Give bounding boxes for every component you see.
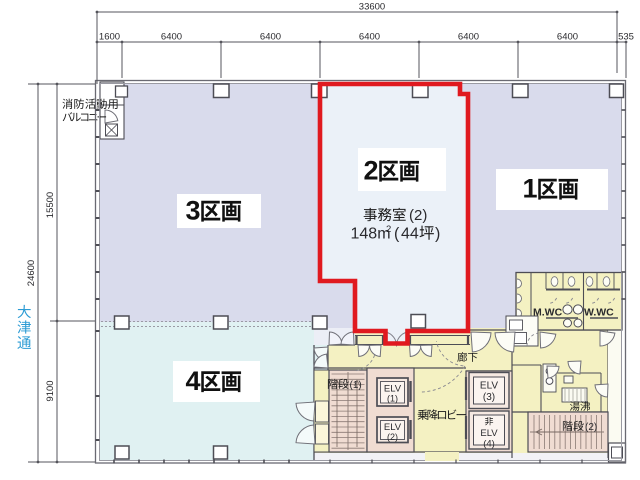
svg-text:(3): (3): [483, 392, 495, 403]
svg-text:15500: 15500: [45, 192, 56, 218]
svg-text:W.WC: W.WC: [584, 307, 614, 319]
svg-text:1: 1: [523, 174, 538, 204]
svg-text:2: 2: [364, 156, 379, 186]
svg-text:4: 4: [186, 366, 201, 396]
svg-text:(4): (4): [483, 439, 495, 450]
svg-text:ELV: ELV: [480, 381, 498, 392]
svg-text:2: 2: [386, 224, 391, 235]
svg-text:(2): (2): [585, 422, 597, 433]
svg-text:(2): (2): [409, 207, 427, 224]
svg-text:148m: 148m: [351, 226, 391, 243]
svg-text:6400: 6400: [557, 32, 578, 43]
svg-text:6400: 6400: [161, 32, 182, 43]
svg-text:9100: 9100: [45, 380, 56, 401]
svg-text:): ): [435, 226, 440, 243]
svg-text:6400: 6400: [260, 32, 281, 43]
svg-text:33600: 33600: [359, 2, 385, 13]
svg-text:1600: 1600: [99, 32, 120, 43]
svg-text:(2): (2): [387, 432, 398, 442]
svg-text:(1): (1): [387, 394, 398, 404]
svg-text:ELV: ELV: [480, 428, 498, 439]
svg-text:3: 3: [186, 196, 201, 226]
svg-text:(: (: [394, 226, 400, 243]
svg-text:6400: 6400: [458, 32, 479, 43]
svg-text:6400: 6400: [359, 32, 380, 43]
svg-text:(1): (1): [350, 380, 362, 391]
svg-text:24600: 24600: [26, 260, 37, 286]
svg-text:44: 44: [401, 226, 419, 243]
